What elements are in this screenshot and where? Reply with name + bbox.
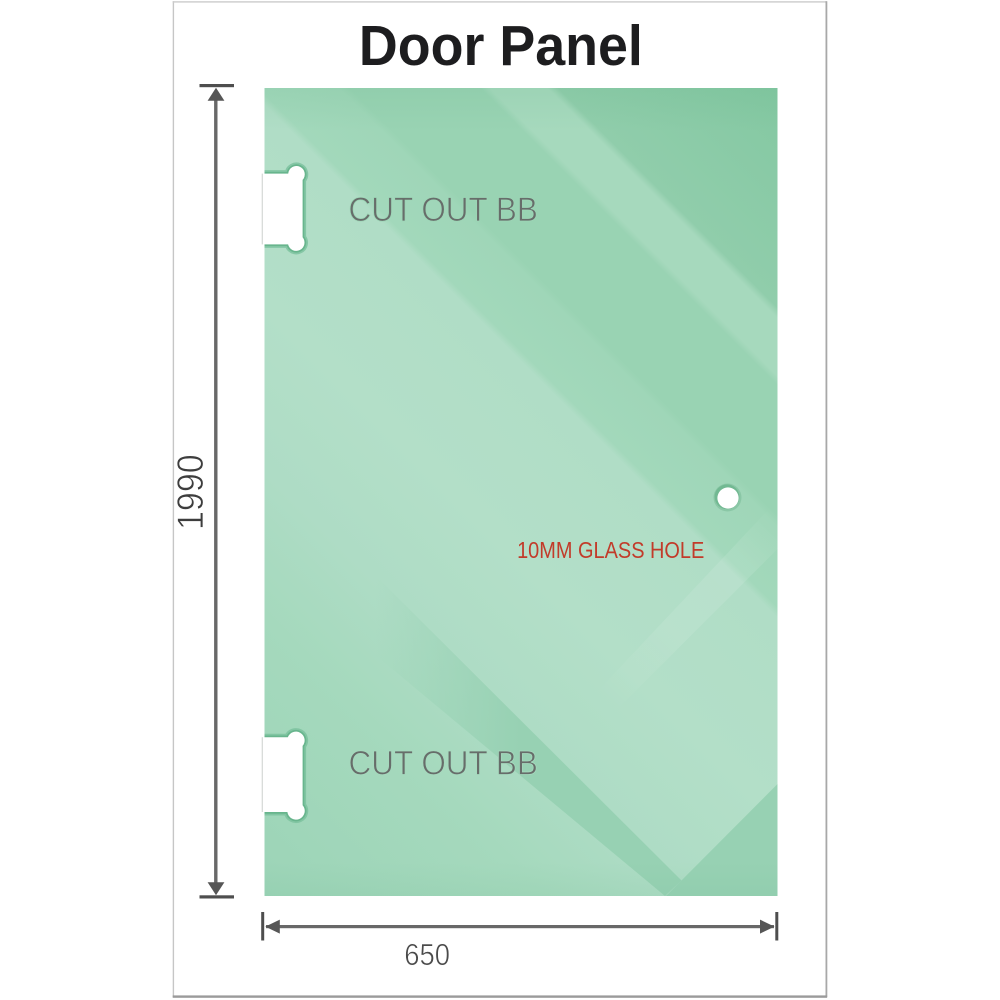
svg-text:CUT OUT BB: CUT OUT BB: [349, 743, 538, 782]
svg-text:1990: 1990: [170, 454, 212, 530]
svg-text:CUT OUT BB: CUT OUT BB: [349, 190, 538, 229]
svg-text:10MM GLASS HOLE: 10MM GLASS HOLE: [517, 537, 704, 563]
svg-text:650: 650: [404, 939, 450, 973]
svg-text:Door Panel: Door Panel: [359, 14, 643, 78]
